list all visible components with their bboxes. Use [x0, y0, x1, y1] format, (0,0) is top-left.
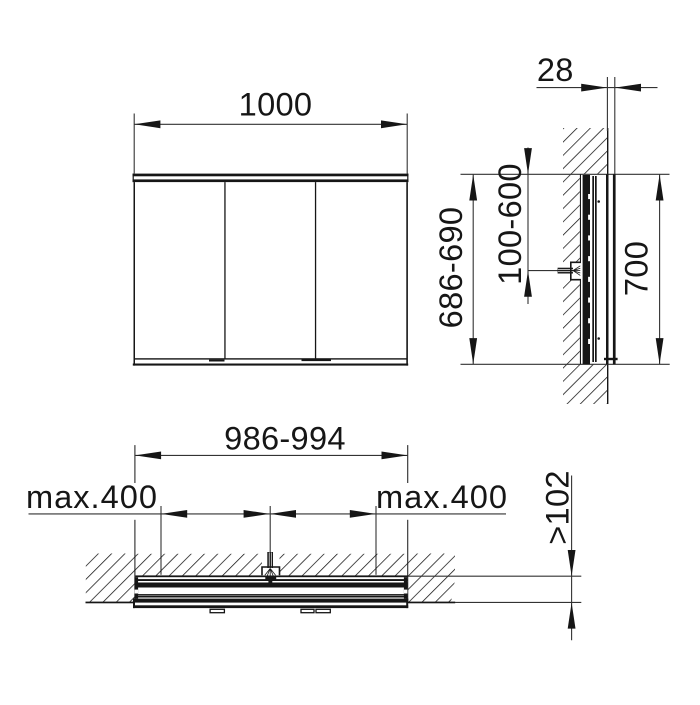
svg-text:max.400: max.400: [376, 478, 508, 515]
svg-text:986-994: 986-994: [224, 419, 346, 456]
svg-text:100-600: 100-600: [491, 163, 528, 285]
svg-text:>102: >102: [539, 470, 576, 545]
svg-text:686-690: 686-690: [432, 207, 469, 329]
svg-text:max.400: max.400: [26, 478, 158, 515]
svg-text:28: 28: [537, 51, 574, 88]
svg-text:1000: 1000: [239, 85, 313, 122]
svg-text:700: 700: [618, 241, 655, 296]
